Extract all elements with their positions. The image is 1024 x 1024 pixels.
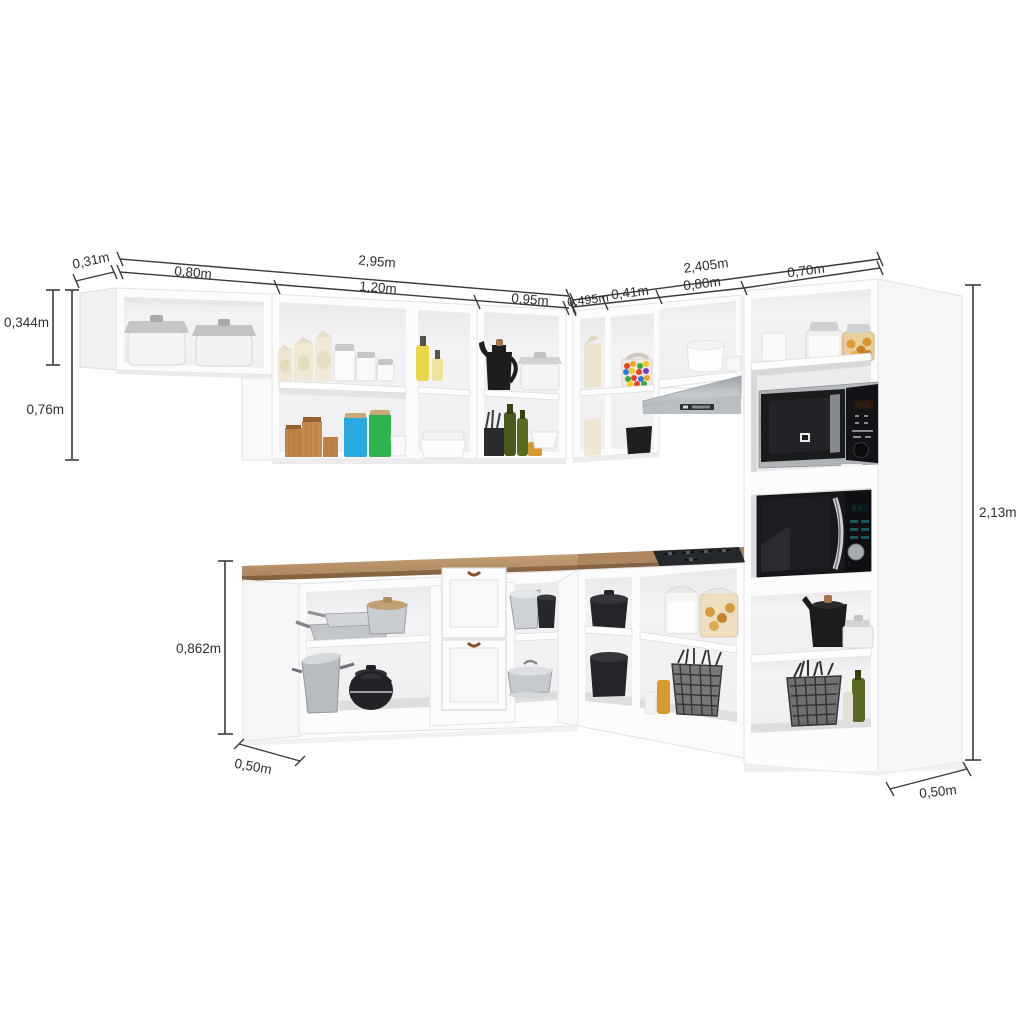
svg-text:888: 888 <box>856 401 870 410</box>
svg-text:0,344m: 0,344m <box>4 315 49 330</box>
svg-text:0,76m: 0,76m <box>26 402 64 417</box>
svg-text:8: 8 <box>848 562 851 568</box>
svg-text:8:8: 8:8 <box>852 506 862 513</box>
svg-text:2,95m: 2,95m <box>358 253 397 271</box>
svg-text:2,13m: 2,13m <box>979 505 1017 520</box>
svg-text:1,20m: 1,20m <box>359 279 398 297</box>
svg-text:0,95m: 0,95m <box>511 291 550 309</box>
svg-text:0,862m: 0,862m <box>176 641 221 656</box>
